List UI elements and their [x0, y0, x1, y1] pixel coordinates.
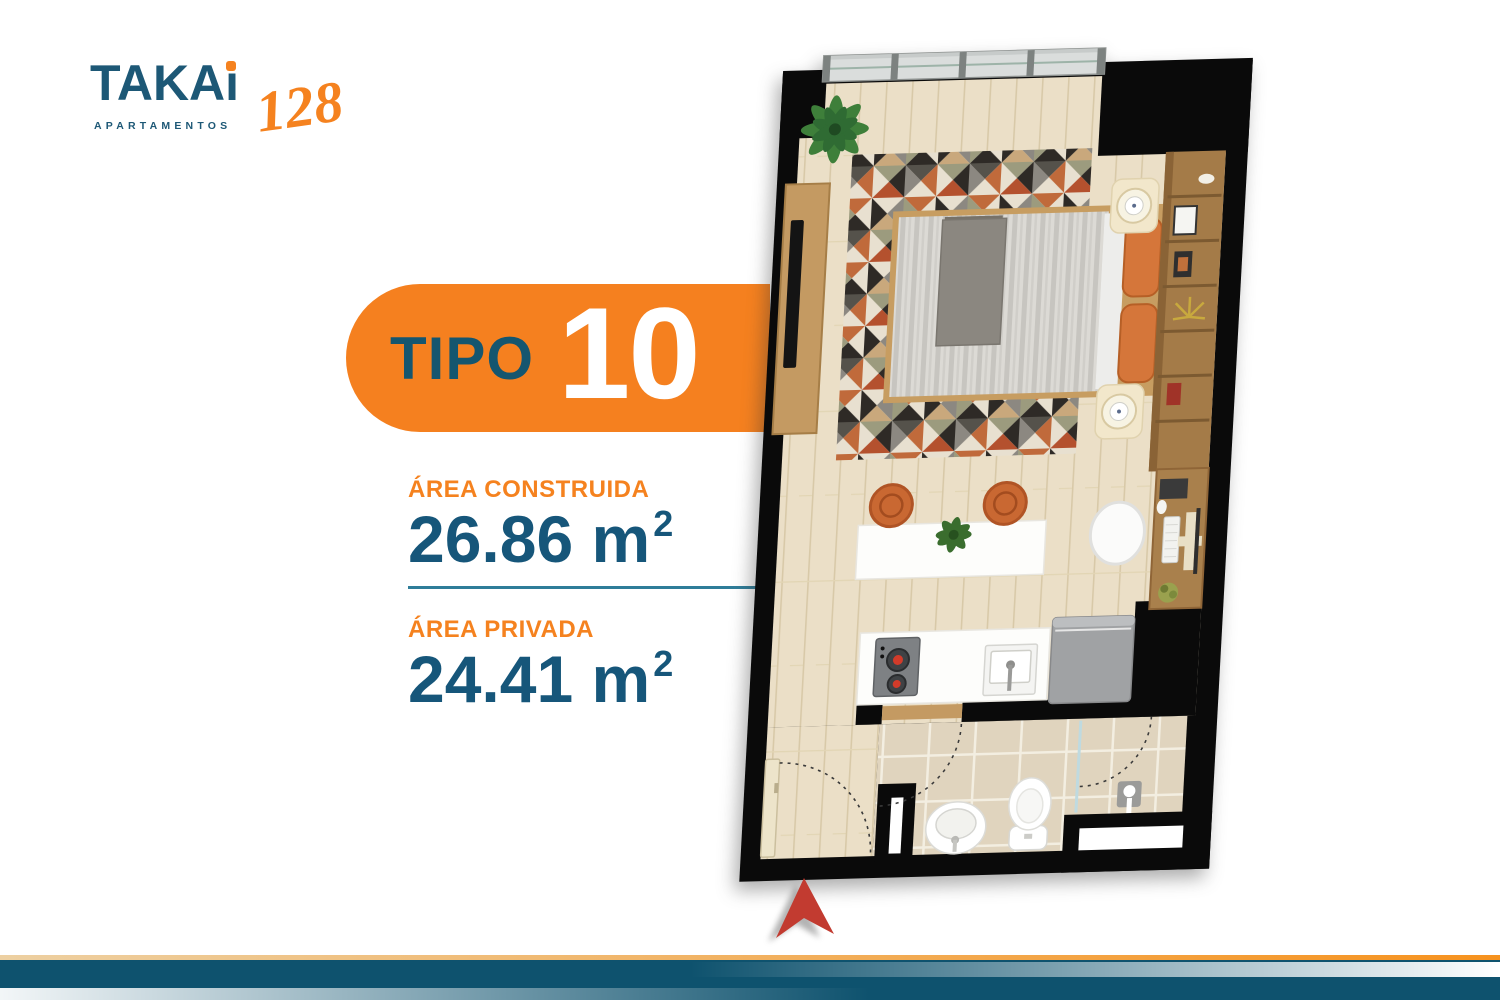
floor-plan: [700, 28, 1300, 888]
poster-canvas: TAKAi 128 APARTAMENTOS TIPO 10 ÁREA CONS…: [0, 0, 1500, 1000]
stove-icon: [873, 637, 920, 696]
unit-type-label: TIPO: [390, 324, 534, 393]
picture-frame-icon: [1173, 206, 1197, 235]
bed-throw-blanket: [936, 218, 1007, 346]
built-area-value: 26.86 m2: [408, 506, 673, 572]
brand-name-i: i: [225, 58, 239, 108]
brand-logo: TAKAi 128 APARTAMENTOS: [90, 58, 370, 148]
brand-number: 128: [252, 72, 346, 142]
footer-shine-left: [0, 988, 870, 1000]
nightstand: [1110, 178, 1160, 233]
footer-orange-line: [0, 955, 1500, 960]
wall-niche: [1078, 825, 1183, 850]
north-arrow-icon: [758, 872, 858, 950]
wall-corner-notch: [1098, 60, 1253, 156]
private-area-label: ÁREA PRIVADA: [408, 616, 594, 644]
bed: [883, 204, 1175, 404]
keyboard-icon: [1162, 517, 1180, 563]
brand-name-head: TAKA: [90, 55, 225, 111]
nightstand: [1095, 384, 1145, 439]
tablet-icon: [1159, 478, 1188, 499]
kitchen-sink-icon: [983, 644, 1038, 695]
door-threshold: [882, 704, 963, 720]
footer-bar: [0, 955, 1500, 1000]
footer-shine-right: [690, 962, 1500, 977]
wall-right-mass: [1130, 600, 1201, 704]
unit-type-value: 10: [558, 288, 699, 418]
wall-bath-band-left: [856, 704, 883, 725]
desk: [1149, 468, 1209, 609]
built-area-label: ÁREA CONSTRUIDA: [408, 476, 649, 504]
book-icon: [1166, 383, 1181, 405]
pillow: [1118, 304, 1158, 383]
private-area-value: 24.41 m2: [408, 646, 673, 712]
fridge: [1048, 615, 1135, 703]
